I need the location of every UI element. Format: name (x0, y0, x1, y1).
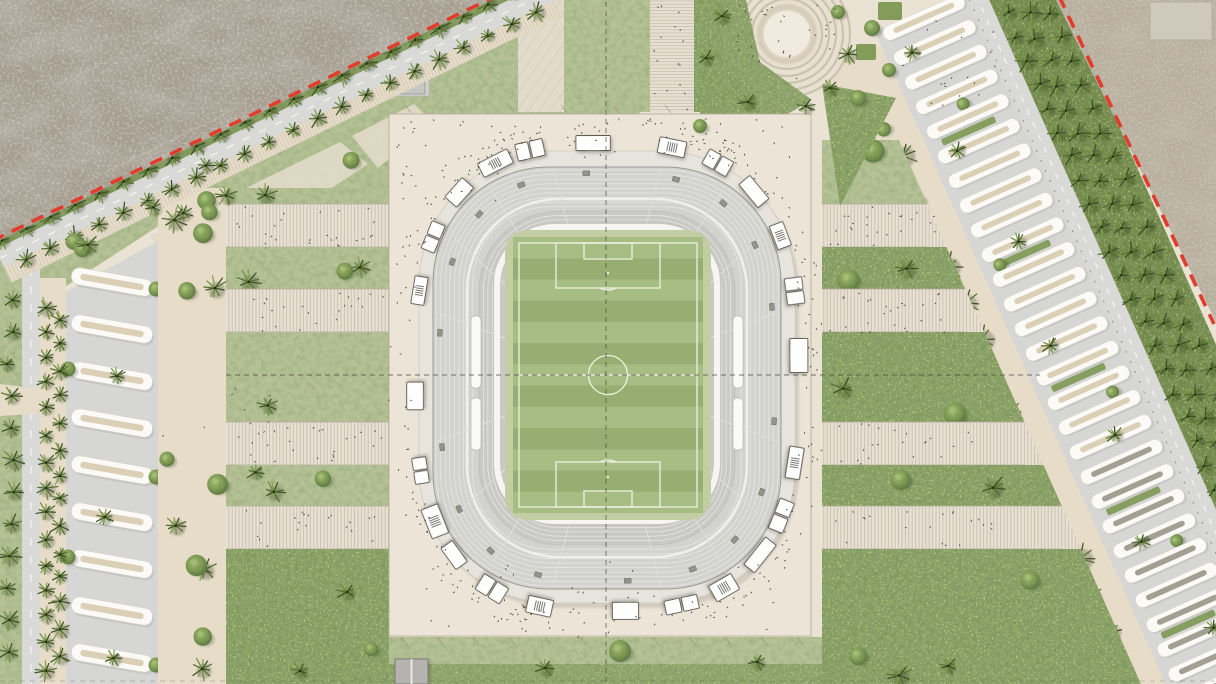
service-building-south (395, 659, 428, 684)
screen-deck (471, 316, 481, 388)
promenade-west (158, 188, 226, 684)
screen-deck (471, 398, 481, 450)
site-plan-canvas (0, 0, 1216, 684)
band-zone-west (226, 184, 389, 684)
steps-band (822, 422, 1043, 465)
steps-band (226, 204, 389, 247)
steps-band (822, 289, 984, 332)
steps-band (822, 506, 1081, 549)
parking-lot-west (61, 240, 167, 684)
stadium-site-plan (0, 0, 1216, 684)
screen-deck (733, 398, 743, 450)
steps-band (226, 289, 389, 332)
stadium-bowl (407, 136, 808, 620)
stair-band-north (650, 0, 694, 112)
kiosk (612, 602, 638, 619)
kiosk (790, 338, 808, 372)
steps-band (822, 204, 946, 247)
steps-band (226, 422, 389, 465)
kiosk (576, 136, 610, 151)
screen-deck (733, 316, 743, 388)
steps-band (226, 506, 389, 549)
kiosk (407, 382, 424, 410)
